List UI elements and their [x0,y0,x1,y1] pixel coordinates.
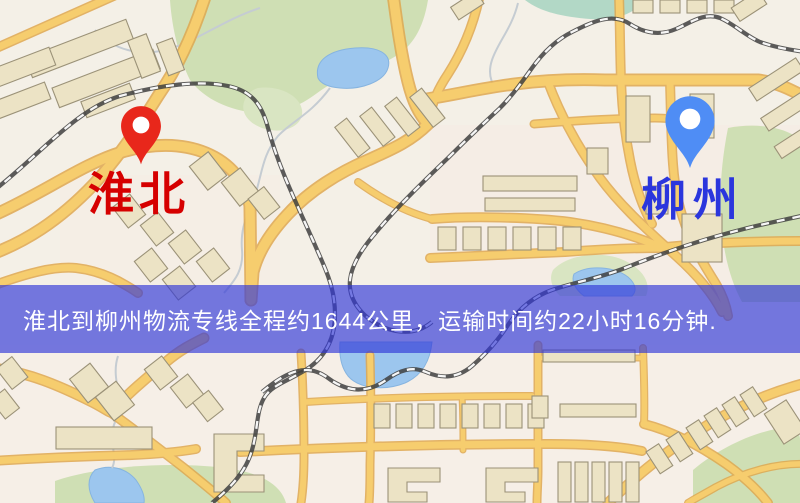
map-view[interactable]: 淮北 柳州 淮北到柳州物流专线全程约1644公里，运输时间约22小时16分钟. [0,0,800,503]
origin-pin-icon[interactable] [120,102,162,169]
pin-shape [665,96,714,168]
origin-label: 淮北 [88,172,190,218]
destination-label: 柳州 [641,178,745,223]
route-info-text: 淮北到柳州物流专线全程约1644公里，运输时间约22小时16分钟. [0,302,717,336]
route-info-banner: 淮北到柳州物流专线全程约1644公里，运输时间约22小时16分钟. [0,285,800,353]
map-canvas[interactable] [0,0,800,503]
pin-hole [133,117,150,134]
pin-shape [121,106,161,164]
pin-hole [680,109,701,130]
destination-pin-icon[interactable] [664,95,716,170]
